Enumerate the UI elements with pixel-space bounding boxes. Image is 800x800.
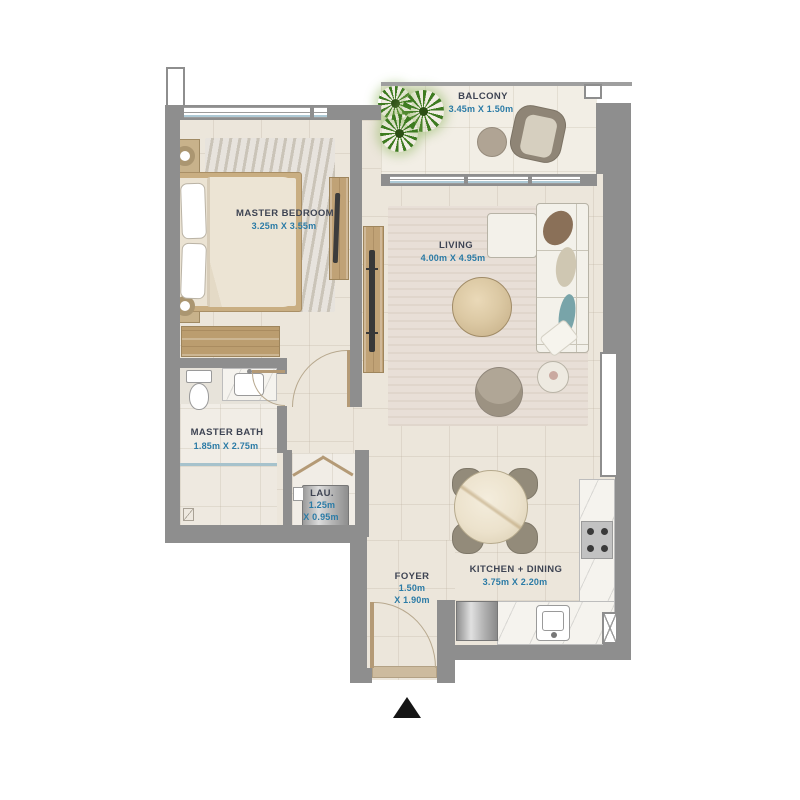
wall-right-shaft-side	[618, 352, 631, 477]
shower-floor	[180, 466, 277, 525]
master-bath-dims: 1.85m X 2.75m	[194, 441, 259, 451]
coffee-table	[452, 277, 512, 337]
bed-pillow-1	[180, 183, 207, 240]
balcony-dims: 3.45m X 1.50m	[449, 104, 514, 114]
laundry-cabinet	[293, 487, 304, 501]
shaft-hatch-icon	[602, 612, 618, 644]
wall-foyer-left	[350, 537, 367, 683]
foyer-dims-line2: X 1.90m	[394, 595, 429, 605]
laundry-label: LAU.	[310, 488, 334, 499]
balcony-door-mullion	[528, 174, 532, 186]
kitchen-sink-basin	[542, 611, 564, 631]
kitchen-dining-label: KITCHEN + DINING	[470, 564, 563, 575]
living-dims: 4.00m X 4.95m	[421, 253, 486, 263]
bed-pillow-2	[180, 243, 207, 300]
column-top-left	[166, 67, 185, 107]
living-pouf	[475, 367, 523, 417]
bedroom-window	[184, 107, 327, 118]
master-bedroom-label: MASTER BEDROOM	[236, 208, 334, 219]
burner-icon	[587, 528, 594, 535]
balcony-door-mullion	[464, 174, 468, 186]
lounge-chair-cushion	[519, 113, 559, 159]
master-bath-label: MASTER BATH	[191, 427, 264, 438]
foyer-dims-line1: 1.50m	[399, 583, 426, 593]
shower-drain-icon	[183, 508, 194, 521]
plant-core-icon	[395, 129, 404, 138]
wall-foyer-bottom	[350, 668, 372, 683]
wall-foyer-right	[437, 600, 455, 683]
wall-right-living	[603, 174, 631, 352]
plant-core-icon	[419, 107, 428, 116]
bedroom-window-mullion	[310, 106, 314, 119]
wardrobe	[181, 326, 280, 357]
burner-icon	[601, 528, 608, 535]
bedroom-door-leaf	[347, 350, 350, 407]
balcony-pouf	[477, 127, 507, 157]
wall-bedroom-living-divider	[350, 115, 362, 407]
wall-kitchen-bottom	[455, 645, 631, 660]
bed-duvet	[207, 177, 295, 307]
living-label: LIVING	[439, 240, 473, 251]
wall-laundry-left	[283, 450, 292, 525]
burner-icon	[601, 545, 608, 552]
wall-right-upper	[596, 103, 631, 174]
toilet-tank	[186, 370, 212, 383]
entrance-marker-icon	[393, 697, 421, 718]
wall-laundry-right	[355, 450, 369, 537]
foyer-label: FOYER	[395, 571, 430, 582]
stove	[581, 521, 613, 559]
shower-glass	[180, 463, 277, 466]
refrigerator	[456, 601, 498, 641]
side-table-decor	[549, 371, 558, 380]
balcony-label: BALCONY	[458, 91, 508, 102]
column-top-right	[584, 84, 602, 99]
kitchen-dining-dims: 3.75m X 2.20m	[483, 577, 548, 587]
wall-bath-right-lower	[277, 406, 287, 453]
kitchen-faucet-icon	[551, 632, 557, 638]
wall-right-lower-side	[618, 612, 631, 646]
tv-living-foot-top	[366, 268, 378, 270]
burner-icon	[587, 545, 594, 552]
tv-living-foot-bottom	[366, 332, 378, 334]
wall-bath-top	[165, 358, 287, 368]
sofa-chaise	[487, 213, 537, 258]
wall-left	[165, 105, 180, 543]
dining-table	[454, 470, 528, 544]
plant-core-icon	[391, 99, 400, 108]
laundry-dims-line1: 1.25m	[309, 500, 336, 510]
floor-plan: BALCONY 3.45m X 1.50m MASTER BEDROOM 3.2…	[0, 0, 800, 800]
toilet-bowl	[189, 383, 209, 410]
service-shaft	[600, 352, 618, 477]
wall-bottom-left	[165, 525, 365, 543]
balcony-sliding-door	[390, 176, 580, 184]
laundry-dims-line2: X 0.95m	[303, 512, 338, 522]
tv-living-icon	[369, 250, 375, 352]
master-bedroom-dims: 3.25m X 3.55m	[252, 221, 317, 231]
plant-icon	[380, 114, 418, 152]
wall-right-kitchen	[615, 477, 631, 612]
